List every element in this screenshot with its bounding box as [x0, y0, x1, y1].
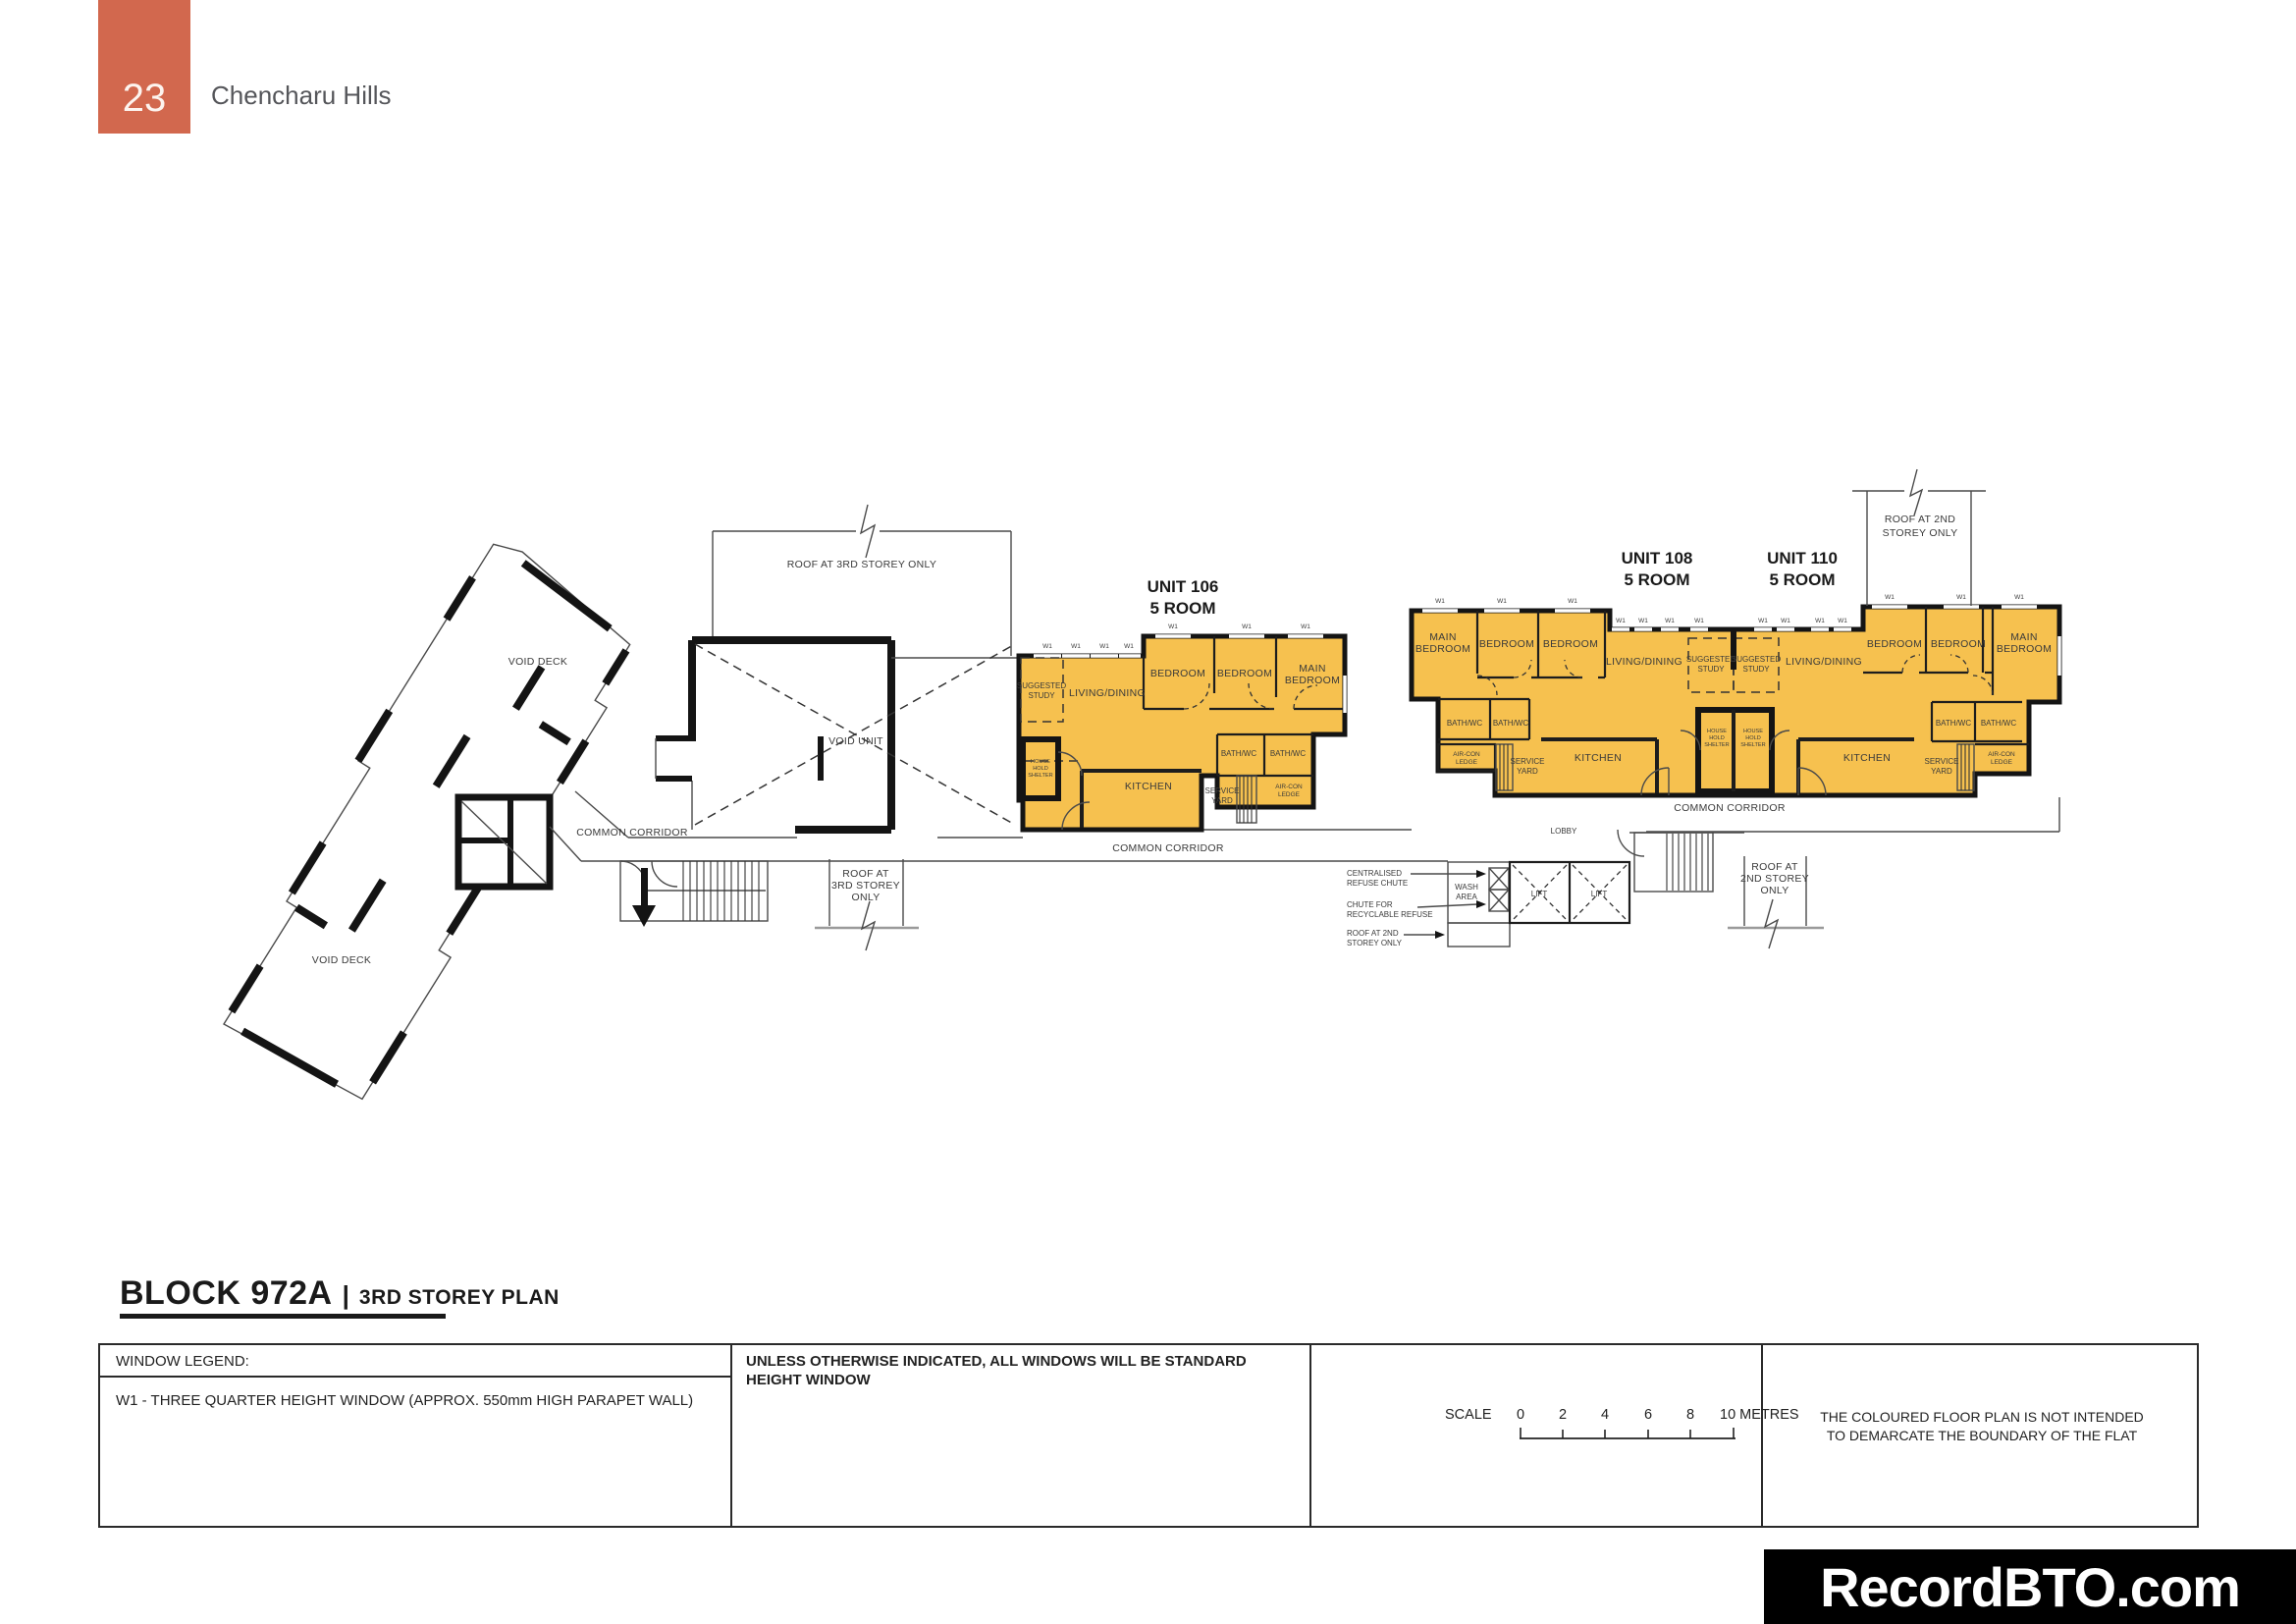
- svg-text:W1: W1: [1071, 643, 1081, 650]
- svg-text:HOLD: HOLD: [1033, 766, 1048, 772]
- svg-text:2ND STOREY: 2ND STOREY: [1740, 873, 1809, 885]
- lift-label: LIFT: [1591, 890, 1608, 898]
- plan-title: BLOCK 972A | 3RD STOREY PLAN: [120, 1274, 560, 1313]
- scale-tick-4: 4: [1601, 1407, 1609, 1423]
- scale-tick-8: 8: [1686, 1407, 1694, 1423]
- svg-text:KITCHEN: KITCHEN: [1125, 781, 1172, 792]
- svg-text:SERVICE: SERVICE: [1205, 786, 1240, 795]
- block-name: BLOCK 972A: [120, 1274, 333, 1313]
- watermark-text: RecordBTO.com: [1820, 1555, 2240, 1619]
- roof-3rd-label: ROOF AT 3RD STOREY ONLY: [787, 559, 936, 570]
- svg-text:W1: W1: [1616, 618, 1626, 624]
- svg-text:BATH/WC: BATH/WC: [1221, 749, 1257, 758]
- svg-text:ONLY: ONLY: [851, 892, 880, 903]
- svg-text:W1: W1: [1568, 598, 1577, 605]
- legend-table: WINDOW LEGEND: W1 - THREE QUARTER HEIGHT…: [98, 1343, 2199, 1528]
- svg-text:BEDROOM: BEDROOM: [1543, 638, 1598, 650]
- svg-text:RECYCLABLE REFUSE: RECYCLABLE REFUSE: [1347, 910, 1433, 919]
- window-note-line2: HEIGHT WINDOW: [746, 1372, 1323, 1390]
- svg-text:W1: W1: [1758, 618, 1768, 624]
- svg-text:LEDGE: LEDGE: [1278, 791, 1301, 798]
- disclaimer-line1: THE COLOURED FLOOR PLAN IS NOT INTENDED: [1763, 1408, 2201, 1427]
- svg-text:BATH/WC: BATH/WC: [1981, 719, 2017, 728]
- chute-annotations: CENTRALISED REFUSE CHUTE CHUTE FOR RECYC…: [1347, 869, 1486, 947]
- scale-bar: [1518, 1428, 1738, 1441]
- scale-tick-0: 0: [1517, 1407, 1524, 1423]
- svg-text:W1: W1: [1435, 598, 1445, 605]
- svg-text:BEDROOM: BEDROOM: [1931, 638, 1986, 650]
- svg-text:SUGGESTED: SUGGESTED: [1017, 681, 1066, 690]
- svg-text:W1: W1: [1694, 618, 1704, 624]
- svg-text:ONLY: ONLY: [1760, 885, 1789, 896]
- common-corridor-label: COMMON CORRIDOR: [1674, 802, 1786, 814]
- staircase-right: [1618, 830, 1713, 892]
- svg-text:BEDROOM: BEDROOM: [1997, 643, 2052, 655]
- lift-label: LIFT: [1531, 890, 1548, 898]
- svg-text:SERVICE: SERVICE: [1925, 757, 1959, 766]
- svg-text:SERVICE: SERVICE: [1511, 757, 1545, 766]
- svg-text:W1: W1: [1665, 618, 1675, 624]
- svg-text:W1: W1: [2014, 594, 2024, 601]
- void-unit: VOID UNIT: [656, 640, 1019, 830]
- svg-text:W1: W1: [1885, 594, 1895, 601]
- scale-tick-6: 6: [1644, 1407, 1652, 1423]
- svg-text:CENTRALISED: CENTRALISED: [1347, 869, 1402, 878]
- svg-text:KITCHEN: KITCHEN: [1843, 752, 1891, 764]
- unit-108-type: 5 ROOM: [1624, 570, 1689, 589]
- svg-text:MAIN: MAIN: [1429, 631, 1456, 643]
- svg-text:AIR-CON: AIR-CON: [1453, 751, 1480, 758]
- common-corridor-label: COMMON CORRIDOR: [1112, 842, 1224, 854]
- svg-text:AIR-CON: AIR-CON: [1988, 751, 2015, 758]
- stair-direction-arrow: [632, 868, 656, 927]
- window-note-line1: UNLESS OTHERWISE INDICATED, ALL WINDOWS …: [746, 1353, 1323, 1372]
- svg-text:BEDROOM: BEDROOM: [1867, 638, 1922, 650]
- roof-3rd-storey-annotation-lower: ROOF AT 3RD STOREY ONLY: [815, 859, 919, 950]
- disclaimer-cell: THE COLOURED FLOOR PLAN IS NOT INTENDED …: [1763, 1345, 2201, 1445]
- common-corridor-label: COMMON CORRIDOR: [576, 827, 688, 839]
- svg-text:BATH/WC: BATH/WC: [1493, 719, 1529, 728]
- roof-3rd-storey-annotation: ROOF AT 3RD STOREY ONLY: [713, 505, 1011, 656]
- svg-text:HOLD: HOLD: [1745, 735, 1761, 741]
- svg-text:LIVING/DINING: LIVING/DINING: [1069, 687, 1146, 699]
- svg-text:AIR-CON: AIR-CON: [1275, 784, 1303, 790]
- svg-text:W1: W1: [1301, 623, 1310, 630]
- window-note-cell: UNLESS OTHERWISE INDICATED, ALL WINDOWS …: [732, 1345, 1323, 1390]
- void-deck-block: VOID DECK VOID DECK: [202, 537, 653, 1108]
- watermark: RecordBTO.com: [1764, 1549, 2296, 1624]
- svg-text:WASH: WASH: [1455, 883, 1478, 892]
- storey-plan-name: 3RD STOREY PLAN: [359, 1286, 560, 1310]
- svg-text:BEDROOM: BEDROOM: [1150, 668, 1205, 679]
- window-legend-title: WINDOW LEGEND:: [100, 1345, 730, 1378]
- svg-text:MAIN: MAIN: [2010, 631, 2037, 643]
- svg-text:AREA: AREA: [1456, 893, 1477, 901]
- scale-cell: SCALE 0 2 4 6 8 10 METRES: [1311, 1345, 1763, 1526]
- svg-text:LEDGE: LEDGE: [1991, 759, 2013, 766]
- title-underline: [120, 1314, 446, 1319]
- svg-text:KITCHEN: KITCHEN: [1575, 752, 1622, 764]
- svg-text:SHELTER: SHELTER: [1028, 773, 1052, 779]
- unit-106-type: 5 ROOM: [1149, 599, 1215, 618]
- svg-text:BEDROOM: BEDROOM: [1479, 638, 1534, 650]
- svg-text:BATH/WC: BATH/WC: [1447, 719, 1483, 728]
- svg-text:W1: W1: [1638, 618, 1648, 624]
- roof-2nd-storey-annotation-right: ROOF AT 2ND STOREY ONLY: [1728, 856, 1824, 948]
- svg-text:HOUSE: HOUSE: [1031, 759, 1050, 765]
- svg-text:SHELTER: SHELTER: [1704, 742, 1729, 748]
- svg-text:SHELTER: SHELTER: [1740, 742, 1765, 748]
- svg-text:HOUSE: HOUSE: [1707, 729, 1727, 734]
- staircase-left: [620, 861, 768, 927]
- svg-text:BATH/WC: BATH/WC: [1936, 719, 1972, 728]
- household-shelters-108-110: [1681, 710, 1789, 791]
- svg-text:W1: W1: [1042, 643, 1052, 650]
- disclaimer-line2: TO DEMARCATE THE BOUNDARY OF THE FLAT: [1763, 1427, 2201, 1445]
- scale-label: SCALE: [1445, 1407, 1492, 1423]
- void-deck-core: [458, 797, 550, 887]
- roof-2nd-storey-annotation-top: ROOF AT 2ND STOREY ONLY: [1852, 469, 1986, 606]
- svg-text:W1: W1: [1781, 618, 1790, 624]
- svg-text:LEDGE: LEDGE: [1456, 759, 1478, 766]
- svg-text:W1: W1: [1815, 618, 1825, 624]
- svg-text:BEDROOM: BEDROOM: [1285, 675, 1340, 686]
- svg-text:ROOF AT 2ND: ROOF AT 2ND: [1885, 514, 1955, 525]
- unit-108-110-block: W1 W1 W1 W1 W1 W1 W1 W1 W1 W1 W1 W1 W1 W…: [1412, 549, 2059, 795]
- svg-text:HOUSE: HOUSE: [1743, 729, 1763, 734]
- svg-text:HOLD: HOLD: [1709, 735, 1725, 741]
- title-separator: |: [343, 1280, 349, 1311]
- unit-110-type: 5 ROOM: [1769, 570, 1835, 589]
- void-deck-label: VOID DECK: [312, 954, 371, 966]
- unit-106-footprint: [1019, 636, 1345, 830]
- svg-text:W1: W1: [1099, 643, 1109, 650]
- lift-block: LIFT LIFT: [1510, 862, 1629, 923]
- svg-text:BATH/WC: BATH/WC: [1270, 749, 1307, 758]
- unit-106-name: UNIT 106: [1148, 577, 1219, 596]
- svg-text:LIVING/DINING: LIVING/DINING: [1786, 656, 1862, 668]
- svg-text:W1: W1: [1956, 594, 1966, 601]
- svg-text:BEDROOM: BEDROOM: [1415, 643, 1470, 655]
- svg-text:W1: W1: [1497, 598, 1507, 605]
- svg-text:YARD: YARD: [1931, 767, 1952, 776]
- svg-text:STOREY ONLY: STOREY ONLY: [1883, 527, 1958, 539]
- svg-text:W1: W1: [1242, 623, 1252, 630]
- svg-text:BEDROOM: BEDROOM: [1217, 668, 1272, 679]
- unit-110-name: UNIT 110: [1767, 549, 1838, 568]
- svg-text:STUDY: STUDY: [1742, 665, 1770, 674]
- svg-text:SUGGESTED: SUGGESTED: [1732, 655, 1781, 664]
- svg-text:STUDY: STUDY: [1697, 665, 1725, 674]
- svg-text:SUGGESTED: SUGGESTED: [1686, 655, 1735, 664]
- w1-description: W1 - THREE QUARTER HEIGHT WINDOW (APPROX…: [100, 1392, 724, 1409]
- svg-text:W1: W1: [1838, 618, 1847, 624]
- svg-text:MAIN: MAIN: [1299, 663, 1325, 675]
- svg-text:STUDY: STUDY: [1028, 691, 1055, 700]
- svg-text:YARD: YARD: [1211, 796, 1233, 805]
- lobby-label: LOBBY: [1551, 827, 1577, 836]
- svg-text:STOREY ONLY: STOREY ONLY: [1347, 939, 1403, 947]
- void-deck-label: VOID DECK: [508, 656, 567, 668]
- unit-108-name: UNIT 108: [1622, 549, 1693, 568]
- svg-text:LIVING/DINING: LIVING/DINING: [1606, 656, 1682, 668]
- svg-text:CHUTE FOR: CHUTE FOR: [1347, 900, 1393, 909]
- void-deck-walls: [204, 544, 648, 1104]
- svg-text:ROOF AT: ROOF AT: [842, 868, 889, 880]
- svg-text:W1: W1: [1168, 623, 1178, 630]
- svg-text:W1: W1: [1124, 643, 1134, 650]
- svg-text:ROOF AT: ROOF AT: [1751, 861, 1798, 873]
- svg-text:REFUSE CHUTE: REFUSE CHUTE: [1347, 879, 1408, 888]
- svg-text:ROOF AT 2ND: ROOF AT 2ND: [1347, 929, 1399, 938]
- scale-tick-2: 2: [1559, 1407, 1567, 1423]
- void-unit-label: VOID UNIT: [828, 735, 883, 747]
- unit-106: W1 W1 W1 W1 W1 W1 W1 SUGGESTED STUDY LIV…: [1017, 577, 1345, 830]
- svg-text:3RD STOREY: 3RD STOREY: [831, 880, 900, 892]
- svg-text:YARD: YARD: [1517, 767, 1538, 776]
